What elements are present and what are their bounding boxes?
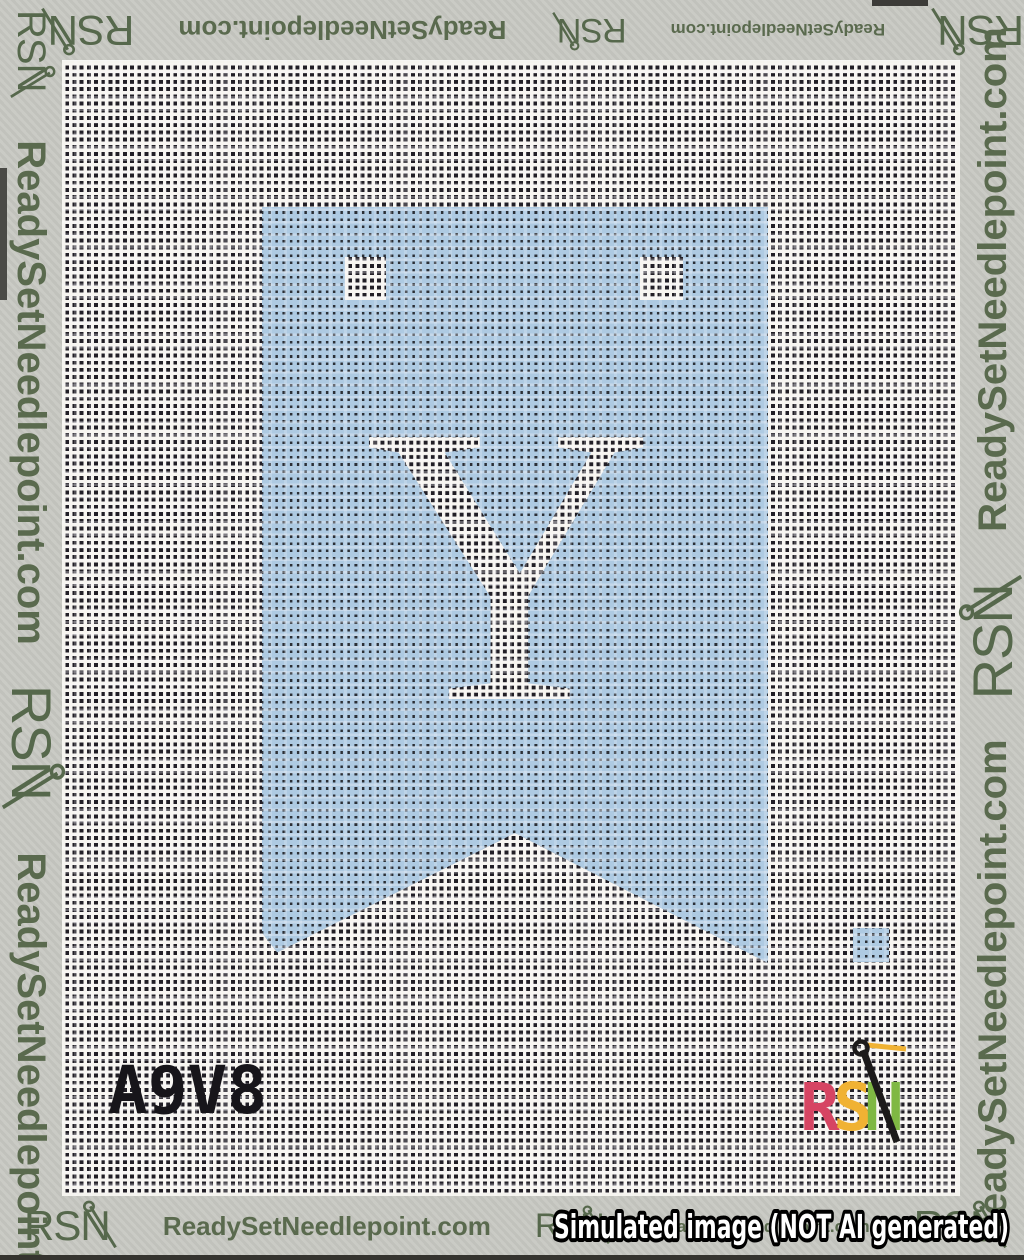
paint-test-swatch [853, 928, 889, 962]
rsn-logo: RSN [965, 572, 1021, 700]
design-code: A9V8 [108, 1058, 267, 1124]
selvage-right: ReadySetNeedlepoint.com RSN ReadySetNeed… [962, 0, 1024, 1260]
grommet-hole-right [640, 257, 683, 300]
rsn-logo: RSN [3, 685, 59, 813]
rsn-logo: RSN [11, 10, 51, 100]
canvas-mesh: Y A9V8 R S N [62, 60, 960, 1196]
monogram-letter: Y [262, 207, 768, 963]
needle-icon [7, 64, 56, 102]
watermark-caption: Simulated image (NOT AI generated) [548, 1198, 1018, 1252]
photo-edge-mark [872, 0, 928, 6]
brand-url: ReadySetNeedlepoint.com [178, 17, 506, 43]
needlepoint-canvas-photo: Y A9V8 R S N RSN ReadySetNeedlepoint.com [0, 0, 1024, 1260]
needle-icon [958, 569, 1024, 623]
banner-design: Y [262, 207, 768, 963]
needle-icon [81, 1200, 121, 1251]
stitched-thread [867, 1045, 906, 1049]
selvage-top: RSN ReadySetNeedlepoint.com RSN ReadySet… [0, 0, 1024, 60]
brand-url: ReadySetNeedlepoint.com [973, 27, 1013, 532]
stitched-rsn-logo: R S N [800, 1036, 912, 1150]
photo-edge-notch [0, 168, 7, 300]
grommet-hole-left [345, 257, 386, 300]
monogram-letter-glyph: Y [365, 343, 654, 786]
brand-url: ReadySetNeedlepoint.com [671, 22, 885, 39]
rsn-logo: RSN [550, 13, 626, 47]
brand-url: ReadySetNeedlepoint.com [11, 852, 51, 1260]
watermark-caption-text: Simulated image (NOT AI generated) [554, 1207, 1009, 1246]
brand-url: ReadySetNeedlepoint.com [973, 739, 1013, 1244]
needle-icon [0, 761, 66, 815]
photo-edge-bottom [0, 1255, 1024, 1260]
brand-url: ReadySetNeedlepoint.com [11, 140, 51, 645]
stitched-needle-eye [855, 1042, 868, 1055]
selvage-left: RSN ReadySetNeedlepoint.com RSN ReadySet… [0, 0, 62, 1260]
brand-url: ReadySetNeedlepoint.com [163, 1213, 491, 1239]
needle-icon [549, 10, 581, 51]
